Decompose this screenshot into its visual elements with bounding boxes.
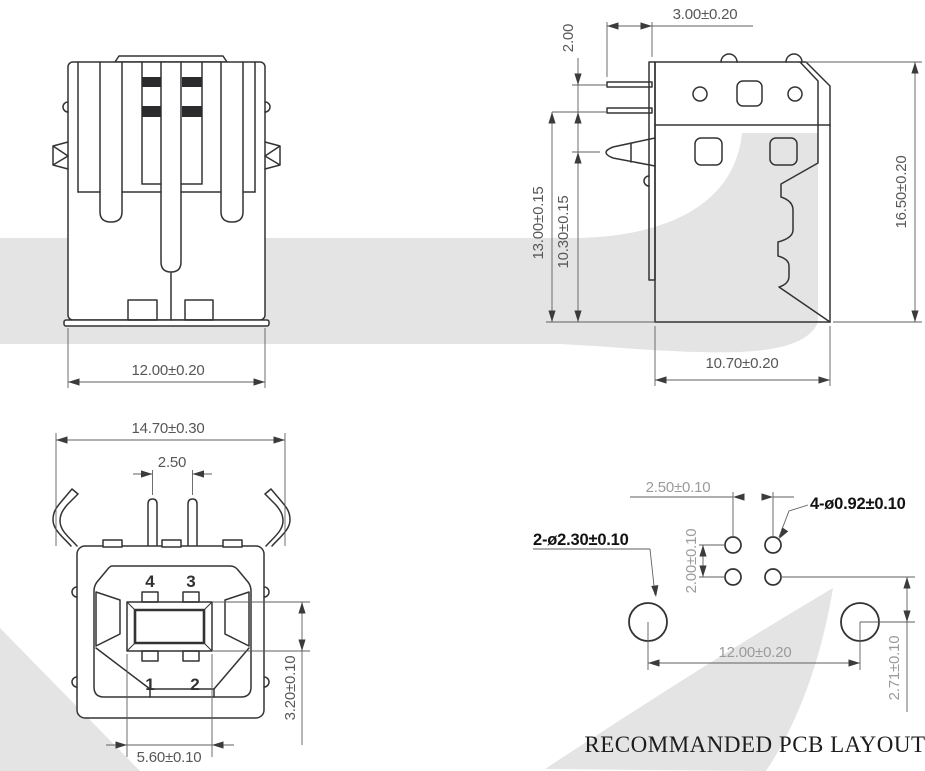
- front-view: 4 3 1 2 14.70±0.30 2.50 3.20±0.10 5.: [53, 420, 310, 766]
- dim-side-pin-to-base: 13.00±0.15: [530, 187, 547, 260]
- technical-drawing-canvas: 12.00±0.20 3.00±0.20: [0, 0, 925, 771]
- side-top-bumps: [721, 54, 802, 62]
- signal-hole-bottom-right: [765, 569, 781, 585]
- drawing-sheet: 12.00±0.20 3.00±0.20: [0, 0, 925, 771]
- rear-view-body: [53, 56, 280, 326]
- dim-pcb-mount-pitch: 12.00±0.20: [719, 644, 792, 661]
- front-view-body: 4 3 1 2: [53, 489, 290, 718]
- dim-side-pin-length: 3.00±0.20: [673, 6, 738, 23]
- dim-side-peg-to-base: 10.30±0.15: [555, 196, 572, 269]
- front-pin1-label: 1: [145, 675, 154, 694]
- front-right-clip: [265, 489, 290, 546]
- dim-pcb-col-pitch: 2.50±0.10: [646, 479, 711, 496]
- front-pin-left: [148, 499, 157, 546]
- front-pin4-label: 4: [145, 572, 155, 591]
- front-pin3-label: 3: [186, 572, 195, 591]
- rear-left-wing: [53, 142, 68, 169]
- dim-pcb-row-pitch: 2.00±0.10: [683, 529, 700, 594]
- dim-front-pin-spacing: 2.50: [158, 454, 186, 471]
- dim-front-overall-width: 14.70±0.30: [132, 420, 205, 437]
- dim-side-pin-pitch: 2.00: [560, 24, 577, 52]
- side-mount-peg: [606, 138, 655, 166]
- signal-hole-bottom-left: [725, 569, 741, 585]
- dim-front-tongue-height: 3.20±0.10: [282, 656, 299, 721]
- signal-hole-top-right: [765, 537, 781, 553]
- side-pin-1: [607, 82, 652, 87]
- pcb-layout-caption: RECOMMANDED PCB LAYOUT: [584, 732, 925, 757]
- front-left-clip: [53, 489, 78, 546]
- front-pin2-label: 2: [190, 675, 199, 694]
- label-pcb-signal-holes: 4-ø0.92±0.10: [810, 495, 906, 513]
- rear-right-wing: [265, 142, 280, 169]
- dim-rear-width: 12.00±0.20: [132, 362, 205, 379]
- side-pin-2: [607, 108, 652, 113]
- pcb-holes: [629, 537, 879, 641]
- dim-pcb-row-offset: 2.71±0.10: [886, 636, 903, 701]
- dim-side-body-depth: 10.70±0.20: [706, 355, 779, 372]
- front-pin-right: [188, 499, 197, 546]
- label-pcb-mount-holes: 2-ø2.30±0.10: [533, 531, 629, 549]
- signal-hole-top-left: [725, 537, 741, 553]
- dim-side-overall-height: 16.50±0.20: [893, 156, 910, 229]
- dim-front-tongue-width: 5.60±0.10: [137, 749, 202, 766]
